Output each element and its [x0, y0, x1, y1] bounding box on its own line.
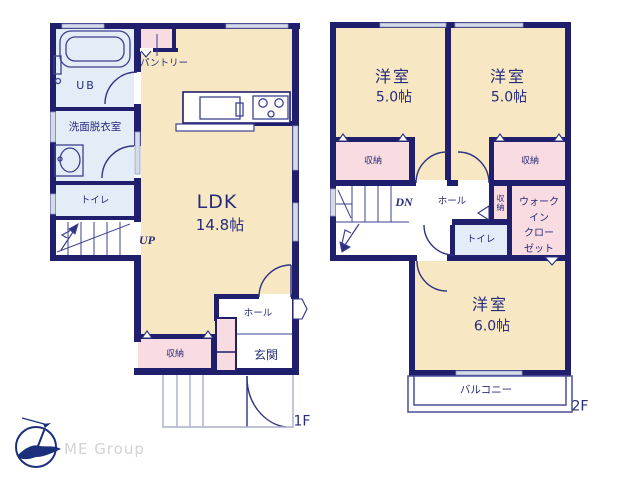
room-label-pantry: パントリー [140, 57, 188, 71]
room-label-storage-c: 収納 [494, 194, 506, 212]
room-label-toilet-1f: トイレ [81, 194, 110, 208]
company-logo [16, 418, 61, 467]
room-label-wic: ウォーク イン クロー ゼット [519, 195, 559, 257]
room-label-storage-b: 収納 [521, 155, 539, 169]
company-name: ME Group [64, 438, 145, 461]
f1-pantry-fill [138, 28, 174, 50]
room-label-entrance: 玄関 [254, 346, 278, 364]
toilet-door-arc [424, 225, 454, 255]
room-label-washroom: 洗面脱衣室 [69, 120, 122, 136]
room-label-a: 洋室 [375, 65, 411, 89]
room-label-toilet-2f: トイレ [467, 233, 496, 247]
room-label-storage-a: 収納 [364, 155, 382, 169]
room-label-hall-1f: ホール [244, 307, 273, 321]
room-size-c: 6.0帖 [474, 317, 510, 338]
room-size-a: 5.0帖 [376, 88, 412, 109]
floor-label-1f: 1F [294, 412, 311, 433]
shoe-cabinet-icon [216, 318, 236, 371]
entrance-door-arc [247, 376, 286, 427]
f1-bathroom-fill [53, 26, 137, 110]
room-label-ub: UB [76, 78, 96, 95]
f1-ldk-fill [138, 26, 296, 340]
room-label-c: 洋室 [472, 293, 508, 317]
room-label-ldk: LDK [197, 188, 238, 217]
stairs-up-label: UP [139, 231, 155, 249]
floor-label-2f: 2F [572, 397, 589, 418]
room-label-hall-2f: ホール [438, 195, 467, 209]
room-size-ldk: 14.8帖 [196, 214, 244, 237]
floorplan-canvas: UB 洗面脱衣室 トイレ パントリー UP LDK 14.8帖 収納 ホール 玄… [0, 0, 640, 480]
room-size-b: 5.0帖 [491, 88, 527, 109]
room-label-storage-1f: 収納 [166, 348, 184, 362]
stairs-down-label: DN [395, 193, 412, 211]
front-door-marker [293, 299, 307, 319]
f1-porch [163, 375, 293, 427]
room-label-b: 洋室 [490, 65, 526, 89]
room-label-balcony: バルコニー [460, 383, 512, 399]
